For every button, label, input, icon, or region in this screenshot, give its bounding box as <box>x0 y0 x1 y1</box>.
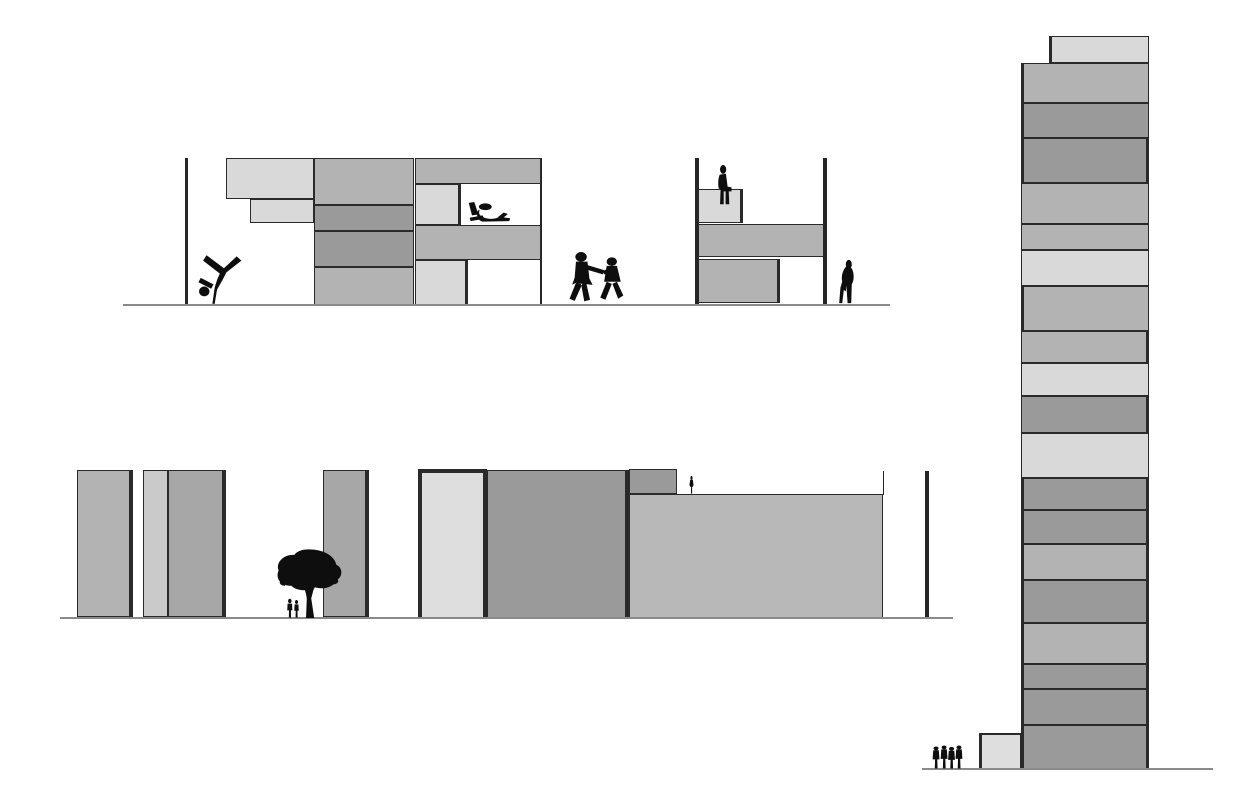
building-block <box>1021 224 1149 250</box>
building-block <box>1021 63 1149 103</box>
building-block <box>1021 250 1149 286</box>
building-block <box>1049 36 1149 63</box>
building-block <box>1021 363 1149 396</box>
building-block <box>1021 433 1149 478</box>
building-block <box>1021 725 1149 769</box>
building-block <box>1021 183 1149 224</box>
building-block <box>1021 478 1149 510</box>
tower-elevation <box>0 0 1250 808</box>
building-block <box>1021 138 1149 183</box>
building-block <box>1021 510 1149 544</box>
building-block <box>1021 544 1149 580</box>
building-block <box>1021 689 1149 725</box>
ground-line <box>922 768 1213 770</box>
building-block <box>1021 103 1149 138</box>
building-block <box>1021 396 1149 433</box>
building-block <box>1021 623 1149 664</box>
group-figure <box>932 745 963 769</box>
building-block <box>1021 331 1149 363</box>
building-block <box>979 733 1021 769</box>
building-block <box>1021 580 1149 623</box>
architectural-diagram <box>0 0 1250 808</box>
building-block <box>1021 664 1149 689</box>
building-block <box>1021 286 1149 331</box>
